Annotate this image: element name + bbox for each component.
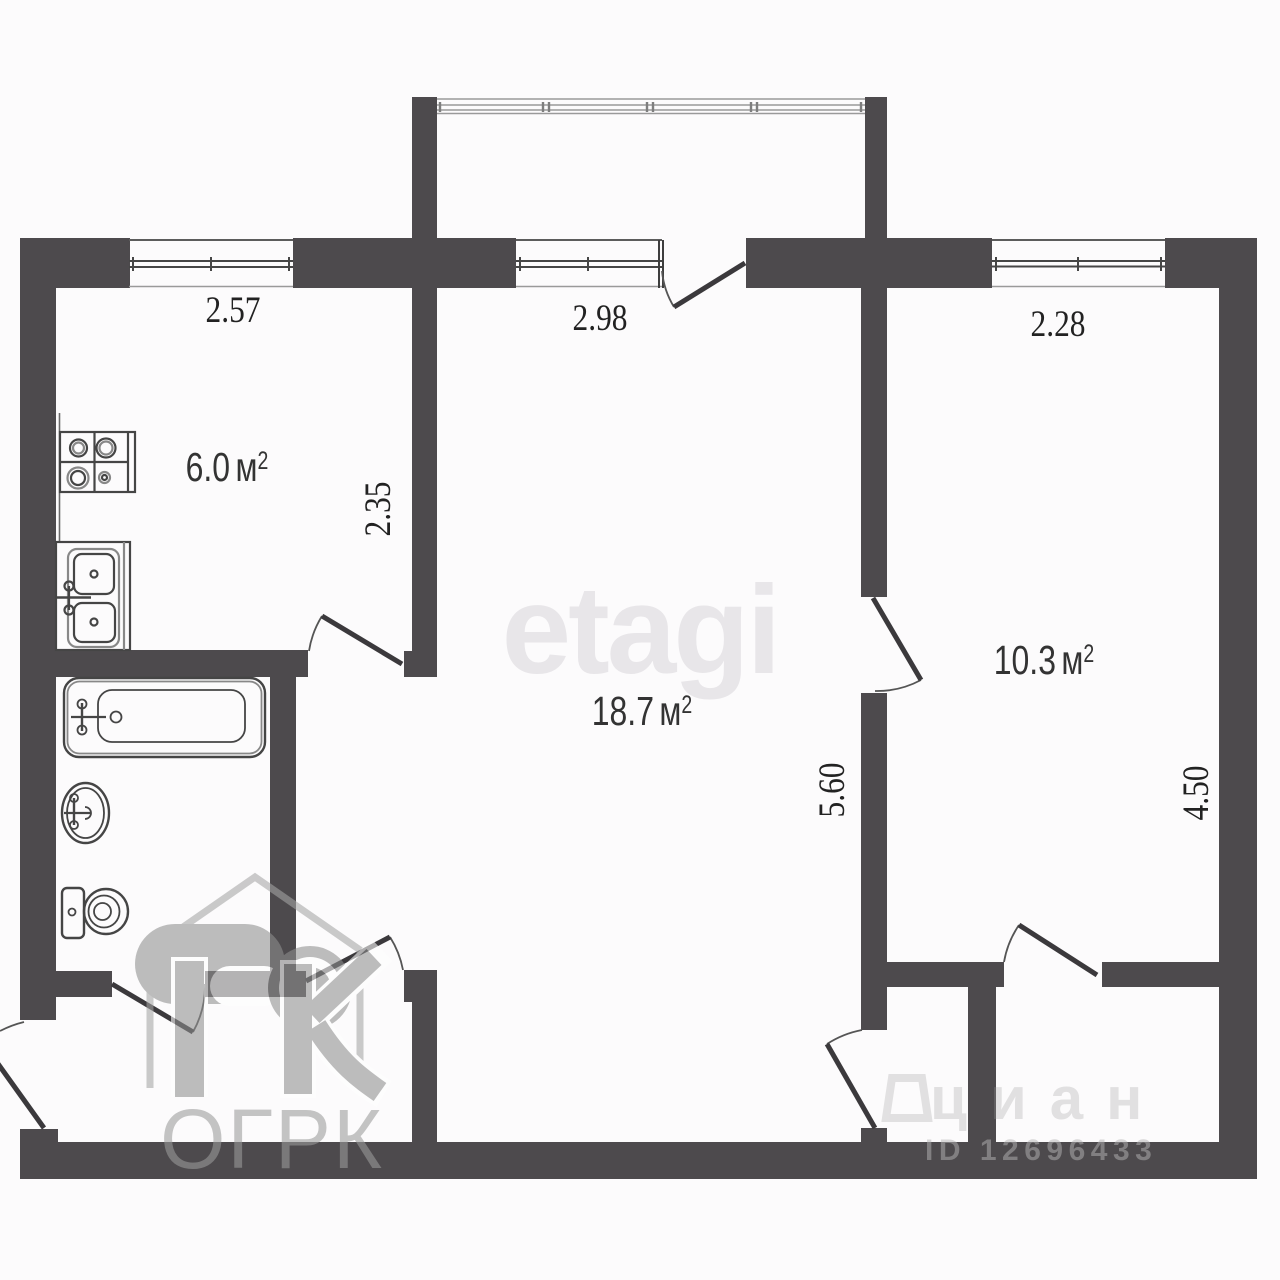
svg-text:циан: циан — [930, 1065, 1165, 1132]
svg-text:6.0м2: 6.0м2 — [186, 444, 269, 490]
svg-text:2.57: 2.57 — [205, 290, 260, 331]
svg-text:2.98: 2.98 — [572, 298, 627, 339]
svg-text:ОГРК: ОГРК — [160, 1092, 384, 1186]
svg-text:2.28: 2.28 — [1030, 304, 1085, 345]
svg-text:ID 12696433: ID 12696433 — [925, 1134, 1157, 1167]
svg-text:4.50: 4.50 — [1176, 765, 1217, 820]
svg-text:10.3м2: 10.3м2 — [994, 637, 1094, 683]
svg-text:etagi: etagi — [502, 561, 779, 700]
svg-text:18.7м2: 18.7м2 — [592, 688, 692, 734]
svg-text:5.60: 5.60 — [812, 762, 853, 817]
svg-text:2.35: 2.35 — [358, 481, 399, 536]
